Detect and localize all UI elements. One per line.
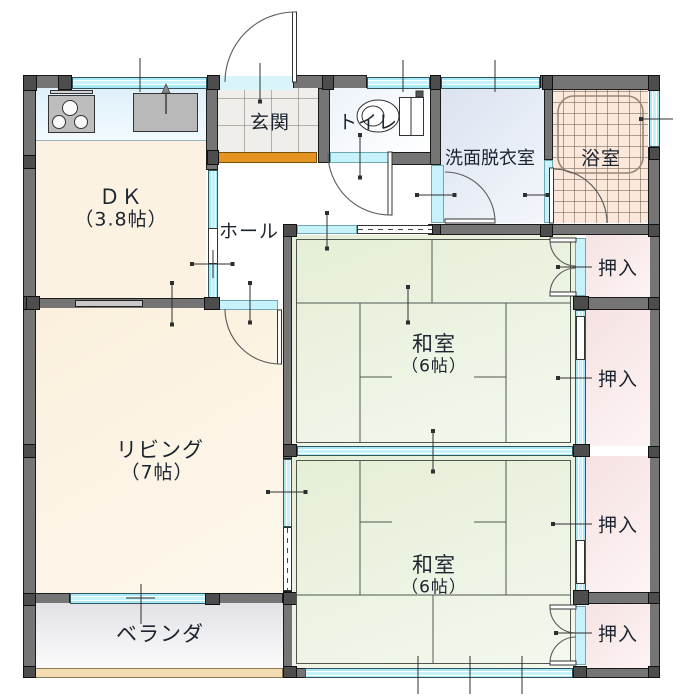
post bbox=[207, 150, 219, 165]
post bbox=[573, 666, 587, 678]
door-washroom-opening bbox=[431, 165, 444, 223]
door-bathroom-opening bbox=[544, 160, 553, 223]
window-living-veranda bbox=[70, 593, 207, 604]
room-label-washroom: 洗面脱衣室 bbox=[445, 144, 535, 170]
post bbox=[283, 224, 297, 237]
window-dk bbox=[72, 77, 207, 89]
closet-2-leaf bbox=[576, 316, 585, 360]
post bbox=[648, 75, 660, 91]
room-size-washitsu-upper: （6帖） bbox=[401, 352, 467, 377]
post bbox=[573, 444, 590, 457]
dk-living-passthrough bbox=[75, 300, 143, 307]
post bbox=[283, 444, 297, 457]
kitchen-sink bbox=[133, 93, 198, 132]
room-label-hall: ホール bbox=[219, 217, 279, 244]
wall-living-washitsu bbox=[283, 235, 292, 459]
room-label-bathroom: 浴室 bbox=[581, 144, 621, 171]
wall-toilet-bottom-stub bbox=[390, 152, 433, 165]
wall-genkan-toilet bbox=[318, 88, 330, 163]
room-label-veranda: ベランダ bbox=[116, 618, 204, 648]
stove-backsplash bbox=[50, 90, 93, 94]
genkan-doorway-outside bbox=[220, 76, 293, 90]
post bbox=[58, 75, 72, 90]
room-size-living: （7帖） bbox=[120, 458, 193, 485]
post bbox=[322, 75, 334, 90]
wall-closet-3-4 bbox=[586, 592, 650, 604]
post bbox=[648, 666, 660, 678]
stove-counter bbox=[48, 95, 95, 133]
window-washitsu-lower bbox=[305, 668, 573, 678]
closet-label-2: 押入 bbox=[598, 365, 638, 392]
post bbox=[205, 593, 220, 605]
door-hall-washitsu-leaf bbox=[357, 225, 440, 234]
closet-3-leaf bbox=[576, 540, 585, 584]
wall-top-5 bbox=[540, 75, 660, 90]
veranda-outer-ledge bbox=[33, 668, 283, 678]
room-label-toilet: トイレ bbox=[338, 108, 398, 135]
post bbox=[23, 75, 37, 91]
closet-label-1: 押入 bbox=[598, 254, 638, 281]
toilet-tank bbox=[399, 97, 424, 136]
post bbox=[648, 224, 660, 237]
window-bathroom bbox=[649, 90, 660, 147]
wall-closet-1-2 bbox=[586, 297, 650, 310]
post bbox=[430, 75, 441, 90]
post bbox=[540, 224, 553, 237]
post bbox=[204, 297, 220, 310]
closet-label-4: 押入 bbox=[598, 620, 638, 647]
post bbox=[432, 224, 441, 235]
door-living-washitsu-opening bbox=[283, 459, 292, 527]
post bbox=[23, 155, 36, 169]
floor-plan: ＤＫ （3.8帖） 玄関 トイレ 洗面脱衣室 浴室 ホール 和室 （6帖） 和室… bbox=[0, 0, 692, 698]
closet-label-3: 押入 bbox=[598, 511, 638, 538]
post bbox=[283, 592, 297, 605]
post bbox=[283, 666, 297, 678]
post bbox=[23, 444, 36, 458]
post bbox=[649, 147, 660, 160]
door-dk-hall-leaf bbox=[208, 228, 218, 264]
post bbox=[26, 296, 40, 310]
room-label-genkan: 玄関 bbox=[250, 108, 290, 135]
door-living-washitsu-leaf bbox=[283, 527, 292, 591]
post bbox=[648, 592, 660, 604]
post bbox=[23, 593, 36, 606]
post bbox=[573, 296, 589, 310]
door-washitsu-divider-sliding bbox=[297, 446, 573, 456]
door-hall-living-opening bbox=[218, 300, 278, 310]
post bbox=[542, 75, 553, 90]
room-size-dk: （3.8帖） bbox=[74, 205, 167, 232]
closet-1-opening bbox=[575, 238, 586, 296]
wall-washroom-bathroom bbox=[544, 88, 553, 160]
wall-toilet-washroom bbox=[430, 88, 441, 165]
post bbox=[648, 297, 660, 310]
post bbox=[573, 590, 589, 605]
closet-4-opening bbox=[575, 606, 586, 665]
window-toilet bbox=[367, 77, 430, 89]
post bbox=[23, 666, 36, 678]
room-size-washitsu-lower: （6帖） bbox=[401, 573, 467, 598]
door-hall-washitsu-opening bbox=[297, 225, 357, 234]
door-toilet-opening bbox=[330, 152, 390, 163]
window-washroom bbox=[441, 77, 540, 89]
post bbox=[207, 75, 220, 90]
genkan-step bbox=[218, 152, 317, 163]
post bbox=[648, 446, 660, 458]
